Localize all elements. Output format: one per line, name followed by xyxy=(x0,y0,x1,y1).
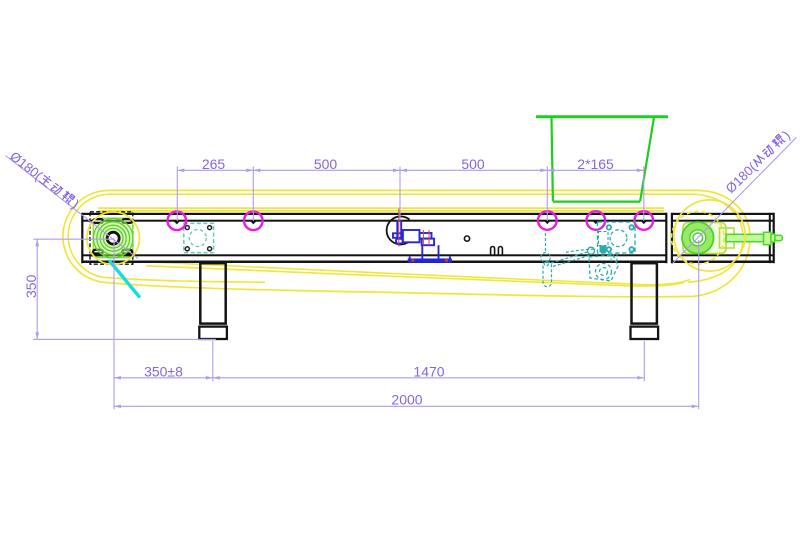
svg-text:2000: 2000 xyxy=(391,391,422,407)
svg-text:265: 265 xyxy=(202,156,226,172)
svg-text:2*165: 2*165 xyxy=(577,156,614,172)
svg-text:500: 500 xyxy=(314,156,338,172)
svg-text:350±8: 350±8 xyxy=(144,364,183,380)
svg-text:1470: 1470 xyxy=(413,364,444,380)
svg-text:500: 500 xyxy=(461,156,485,172)
svg-text:350: 350 xyxy=(23,274,39,298)
